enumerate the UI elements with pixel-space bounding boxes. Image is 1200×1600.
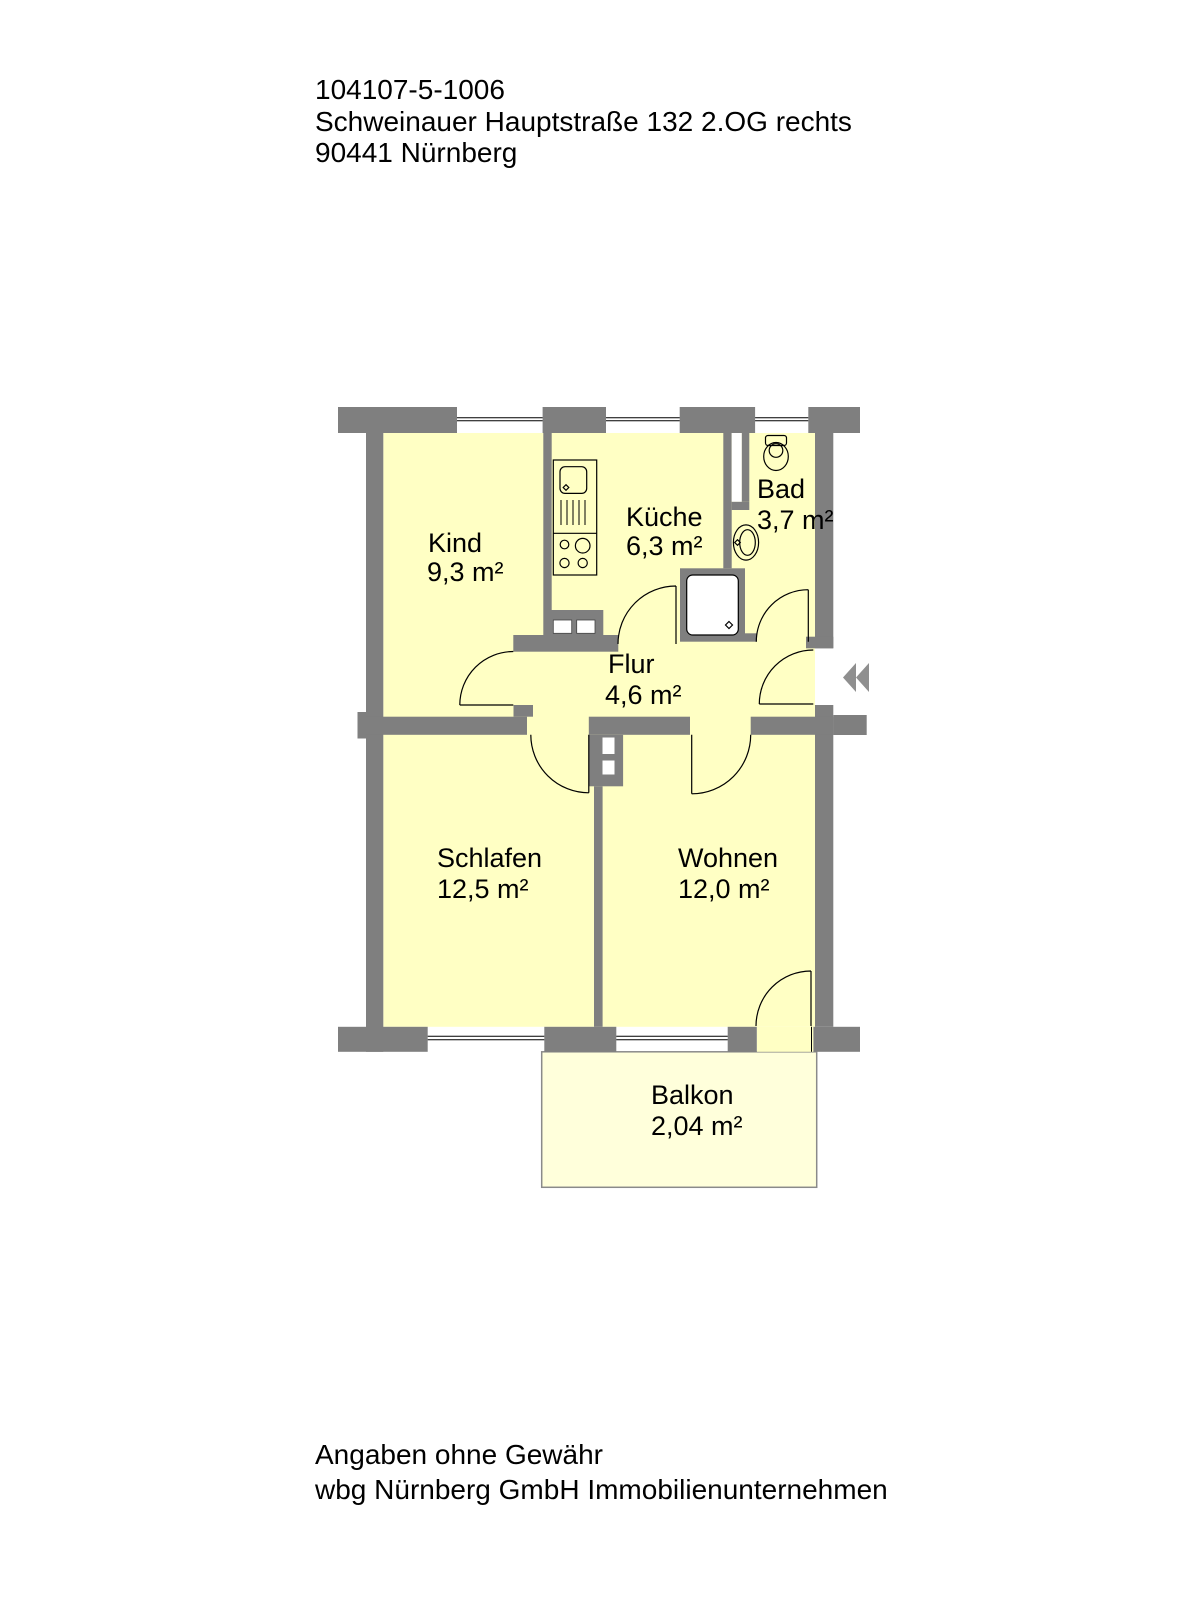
wall-bottom-pier-2 bbox=[544, 1027, 616, 1052]
duct-opening-2 bbox=[603, 761, 615, 775]
room-area-flur: 4,6 m² bbox=[605, 680, 682, 710]
room-label-flur: Flur bbox=[608, 649, 655, 679]
room-label-balkon: Balkon bbox=[651, 1080, 734, 1110]
room-label-bad: Bad bbox=[757, 474, 805, 504]
wall-right-tick bbox=[833, 715, 866, 735]
wall-kind-door-jamb bbox=[514, 705, 534, 717]
wall-bottom-pier-1 bbox=[338, 1027, 428, 1052]
balcony-door-threshold bbox=[757, 1027, 814, 1052]
room-area-balkon: 2,04 m² bbox=[651, 1111, 743, 1141]
header: 104107-5-1006 Schweinauer Hauptstraße 13… bbox=[315, 74, 852, 169]
wall-bottom-pier-4 bbox=[813, 1027, 860, 1052]
wall-kueche-bad bbox=[723, 433, 731, 568]
wall-shaft-cap bbox=[732, 502, 750, 510]
room-area-schlafen: 12,5 m² bbox=[437, 874, 529, 904]
disclaimer-line: Angaben ohne Gewähr bbox=[315, 1437, 888, 1472]
wall-schlafen-wohnen bbox=[594, 786, 603, 1027]
wall-top-pier-2 bbox=[543, 407, 606, 433]
room-label-kind: Kind bbox=[428, 528, 482, 558]
shower-tray bbox=[687, 575, 739, 635]
object-id: 104107-5-1006 bbox=[315, 74, 852, 106]
city-line: 90441 Nürnberg bbox=[315, 137, 852, 169]
wall-middle-2 bbox=[589, 717, 690, 735]
wall-entrance-jamb bbox=[806, 637, 833, 649]
room-label-kueche: Küche bbox=[626, 502, 703, 532]
glass-block-2 bbox=[577, 620, 595, 633]
footer: Angaben ohne Gewähr wbg Nürnberg GmbH Im… bbox=[315, 1437, 888, 1507]
wall-left-tick bbox=[358, 712, 367, 739]
wall-right-upper bbox=[815, 433, 833, 648]
wall-flur-north bbox=[513, 635, 618, 652]
glass-block-1 bbox=[553, 620, 571, 633]
wall-shaft-jamb bbox=[742, 433, 750, 502]
wall-bottom-pier-3 bbox=[728, 1027, 757, 1052]
shower-fixture bbox=[687, 575, 739, 635]
duct-opening-1 bbox=[603, 738, 615, 755]
wall-middle-1 bbox=[366, 717, 527, 735]
ventilation-shaft bbox=[732, 433, 742, 502]
wall-top-pier-1 bbox=[338, 407, 457, 433]
room-area-kind: 9,3 m² bbox=[427, 557, 504, 587]
address-line: Schweinauer Hauptstraße 132 2.OG rechts bbox=[315, 106, 852, 138]
entrance-arrow-icon bbox=[843, 663, 869, 692]
room-label-schlafen: Schlafen bbox=[437, 843, 542, 873]
room-area-wohnen: 12,0 m² bbox=[678, 874, 770, 904]
wall-kind-kueche bbox=[543, 433, 551, 610]
floor-plan: Kind 9,3 m² Küche 6,3 m² Bad 3,7 m² Flur… bbox=[330, 395, 875, 1190]
wall-top-pier-3 bbox=[680, 407, 755, 433]
room-area-kueche: 6,3 m² bbox=[626, 531, 703, 561]
wall-middle-3 bbox=[751, 717, 834, 735]
floorplan-page: 104107-5-1006 Schweinauer Hauptstraße 13… bbox=[0, 0, 1200, 1600]
company-line: wbg Nürnberg GmbH Immobilienunternehmen bbox=[315, 1472, 888, 1507]
wall-bad-south bbox=[745, 633, 757, 641]
wall-top-pier-4 bbox=[808, 407, 860, 433]
room-area-bad: 3,7 m² bbox=[757, 505, 834, 535]
wall-right-lower bbox=[815, 705, 833, 1027]
room-label-wohnen: Wohnen bbox=[678, 843, 778, 873]
wall-left bbox=[366, 433, 383, 1052]
